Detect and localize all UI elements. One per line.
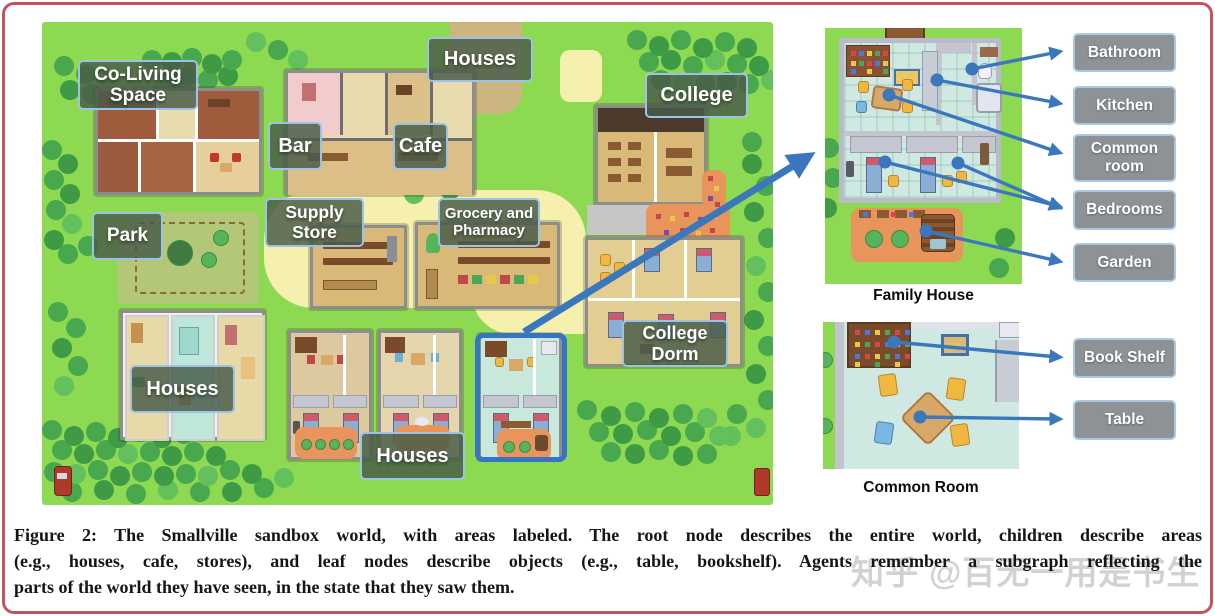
label-text: College [660, 84, 732, 106]
map-label-college-dorm: College Dorm [622, 320, 728, 367]
building-college [595, 105, 707, 205]
label-text: Bathroom [1088, 44, 1161, 62]
label-text: Houses [444, 48, 516, 70]
label-bedrooms: Bedrooms [1073, 190, 1176, 230]
map-label-cafe: Cafe [393, 123, 448, 170]
map-label-college: College [645, 73, 748, 118]
tree-cluster [627, 30, 647, 50]
highlighted-house-outline [475, 333, 567, 462]
label-text: Book Shelf [1084, 349, 1165, 367]
label-book-shelf: Book Shelf [1073, 338, 1176, 378]
label-text: Houses [376, 445, 448, 467]
label-text: Garden [1097, 254, 1151, 272]
label-table: Table [1073, 400, 1176, 440]
family-house-image [825, 28, 1022, 284]
common-room-caption: Common Room [823, 479, 1019, 497]
smallville-map: Co-Living Space Houses College Bar Cafe … [42, 22, 773, 505]
tree-cluster [42, 420, 62, 440]
map-label-supply-store: Supply Store [265, 198, 364, 247]
label-text: Co-Living Space [84, 64, 192, 107]
map-label-houses-west: Houses [130, 365, 235, 413]
label-kitchen: Kitchen [1073, 86, 1176, 125]
label-text: Bedrooms [1086, 201, 1163, 219]
map-label-houses-north: Houses [427, 37, 533, 82]
label-text: Table [1105, 411, 1144, 429]
common-room-image [823, 322, 1019, 469]
figure-caption: Figure 2: The Smallville sandbox world, … [14, 522, 1202, 600]
family-house-caption: Family House [825, 287, 1022, 305]
label-text: Park [107, 225, 148, 246]
map-label-bar: Bar [268, 122, 322, 170]
label-text: Kitchen [1096, 97, 1153, 115]
figure-2-smallville: Co-Living Space Houses College Bar Cafe … [0, 0, 1215, 616]
bookshelf [847, 322, 911, 368]
tree-cluster [48, 302, 68, 322]
caption-line: parts of the world they have seen, in th… [14, 574, 1202, 600]
map-label-park: Park [92, 212, 163, 260]
family-house-floorplan [839, 38, 1001, 203]
label-text: Common room [1078, 140, 1171, 176]
caption-line: Figure 2: The Smallville sandbox world, … [14, 522, 1202, 548]
label-common-room: Common room [1073, 134, 1176, 182]
map-label-houses-south: Houses [360, 432, 465, 480]
flower-patch [702, 170, 726, 208]
red-car [54, 466, 72, 496]
map-label-co-living-space: Co-Living Space [78, 60, 198, 110]
house-garden [295, 427, 357, 459]
village-path [560, 50, 602, 102]
tree-cluster [577, 400, 597, 420]
family-house-garden [851, 208, 963, 262]
label-bathroom: Bathroom [1073, 33, 1176, 72]
tree-cluster [42, 140, 62, 160]
label-text: Supply Store [271, 203, 358, 242]
label-garden: Garden [1073, 243, 1176, 282]
label-text: Bar [278, 135, 311, 157]
label-text: Cafe [399, 135, 442, 157]
wall-frame [941, 334, 969, 356]
tree-cluster [54, 56, 74, 76]
red-gate [754, 468, 770, 496]
label-text: Houses [146, 378, 218, 400]
label-text: College Dorm [628, 323, 722, 363]
label-text: Grocery and Pharmacy [444, 206, 534, 240]
map-label-grocery-pharmacy: Grocery and Pharmacy [438, 198, 540, 247]
gazebo [921, 214, 955, 252]
tree-cluster [742, 132, 762, 152]
caption-line: (e.g., houses, cafe, stores), and leaf n… [14, 548, 1202, 574]
